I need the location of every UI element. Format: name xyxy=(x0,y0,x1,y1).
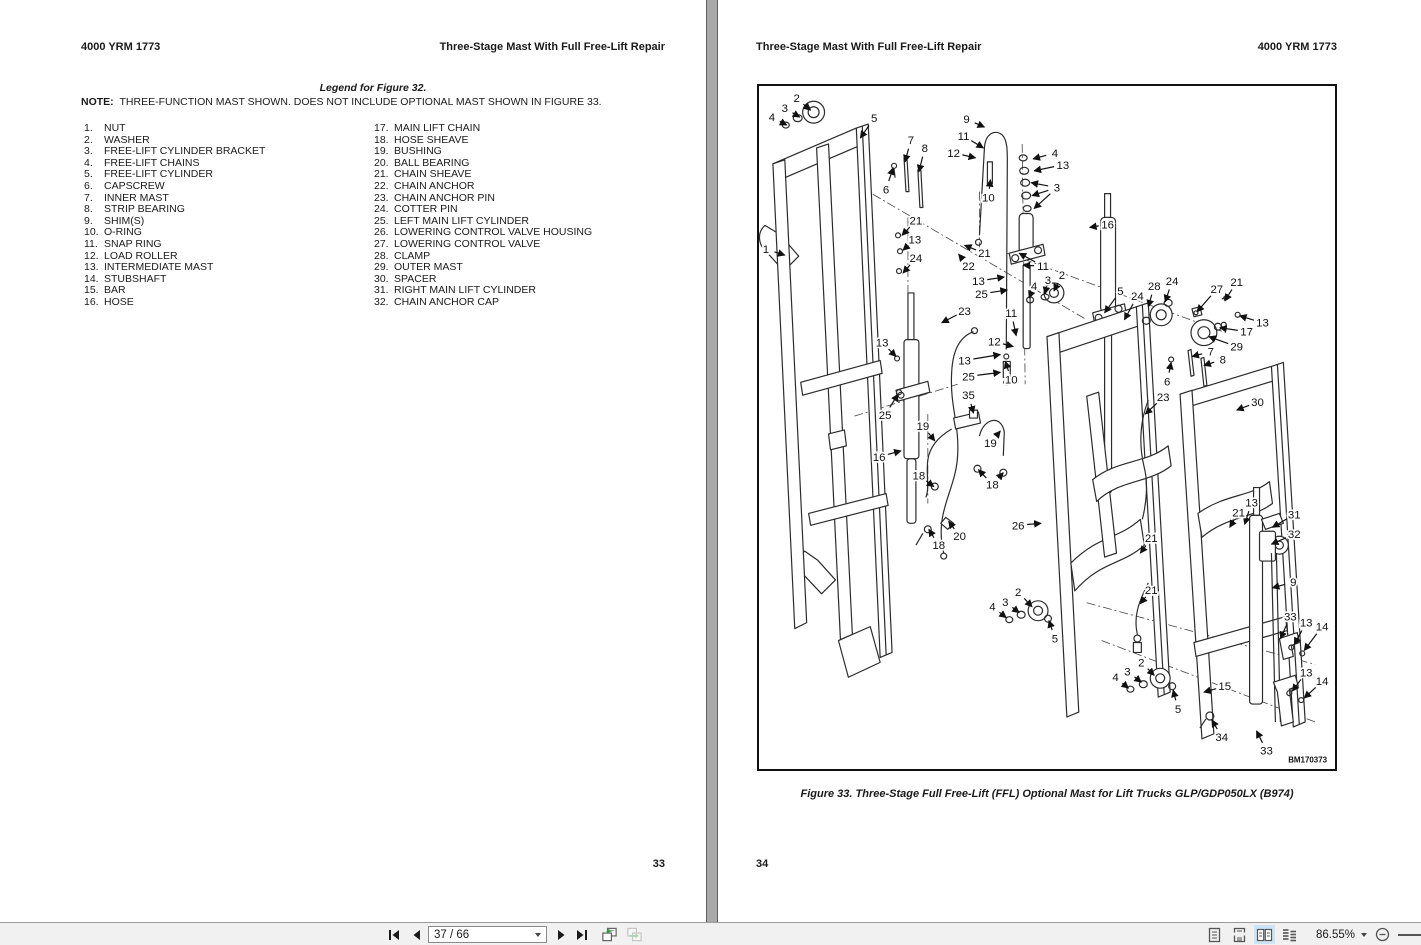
figure-callout: 5 xyxy=(871,113,877,125)
legend-item: 8.STRIP BEARING xyxy=(84,204,374,216)
figure-callout: 13 xyxy=(876,338,889,350)
page-divider xyxy=(706,0,718,922)
legend-item: 27.LOWERING CONTROL VALVE xyxy=(374,239,664,251)
pdf-toolbar: 37 / 66 xyxy=(0,922,1421,945)
figure-callout: 5 xyxy=(1117,286,1123,298)
legend-column-1: 1.NUT2.WASHER3.FREE-LIFT CYLINDER BRACKE… xyxy=(84,123,374,309)
legend-item: 16.HOSE xyxy=(84,297,374,309)
figure-callout: 13 xyxy=(1245,497,1258,509)
figure-callout: 25 xyxy=(975,289,988,301)
figure-callout: 13 xyxy=(1300,618,1313,630)
figure-callout: 12 xyxy=(947,148,960,160)
legend-item: 6.CAPSCREW xyxy=(84,181,374,193)
figure-callout: 17 xyxy=(1240,327,1253,339)
figure-callout: 9 xyxy=(963,114,969,126)
figure-callout: 8 xyxy=(1220,354,1226,366)
figure-callout: 7 xyxy=(908,135,914,147)
figure-callout: 28 xyxy=(1148,281,1161,293)
figure-callout: 3 xyxy=(1124,666,1130,678)
figure-callout: 12 xyxy=(988,337,1001,349)
figure-callout: 11 xyxy=(958,131,970,143)
figure-callout: 3 xyxy=(1054,183,1060,195)
legend-column-2: 17.MAIN LIFT CHAIN18.HOSE SHEAVE19.BUSHI… xyxy=(374,123,664,309)
figure-callout: 25 xyxy=(879,410,892,422)
figure-callout: 13 xyxy=(1256,318,1269,330)
figure-callout: 18 xyxy=(913,471,926,483)
figure-callout: 13 xyxy=(909,234,922,246)
figure-callout: 6 xyxy=(1164,376,1170,388)
page-number-value: 37 / 66 xyxy=(434,929,535,941)
figure-callout: 4 xyxy=(769,112,776,124)
figure-callout: 33 xyxy=(1260,746,1273,758)
zoom-dropdown-caret-icon[interactable] xyxy=(1361,933,1367,937)
figure-callout: 16 xyxy=(1101,219,1114,231)
figure-callout: 16 xyxy=(873,452,886,464)
document-page-34: Three-Stage Mast With Full Free-Lift Rep… xyxy=(718,0,1421,922)
zoom-slider[interactable] xyxy=(1398,934,1421,936)
next-page-button[interactable] xyxy=(552,926,569,943)
previous-view-button[interactable] xyxy=(601,926,618,943)
figure-callout: 1 xyxy=(763,244,769,256)
figure-callout: 29 xyxy=(1230,342,1243,354)
figure-33-exploded-diagram: 2345786911121041331612113242122132523111… xyxy=(757,84,1337,771)
figure-callout: 34 xyxy=(1215,732,1228,744)
figure-callout: 5 xyxy=(1052,634,1058,646)
header-doc-code: 4000 YRM 1773 xyxy=(1258,41,1337,53)
figure-callout: 4 xyxy=(989,602,996,614)
figure-caption: Figure 33. Three-Stage Full Free-Lift (F… xyxy=(757,788,1337,800)
figure-callout: 21 xyxy=(1145,585,1158,597)
figure-callout: 18 xyxy=(932,540,945,552)
figure-callout: 13 xyxy=(972,276,985,288)
figure-callout: 20 xyxy=(953,531,966,543)
header-doc-code: 4000 YRM 1773 xyxy=(81,41,160,53)
figure-callout: 7 xyxy=(1208,347,1214,359)
figure-callout: 15 xyxy=(1218,681,1231,693)
figure-callout: 3 xyxy=(1002,597,1008,609)
last-page-button[interactable] xyxy=(573,926,590,943)
figure-callout: 13 xyxy=(1300,667,1313,679)
figure-callout: 9 xyxy=(1290,577,1296,589)
page-number: 34 xyxy=(756,858,768,870)
figure-callout: 13 xyxy=(1057,160,1070,172)
mast-exploded-view-drawing: 2345786911121041331612113242122132523111… xyxy=(759,86,1335,769)
continuous-view-button[interactable] xyxy=(1229,925,1250,944)
two-page-view-button[interactable] xyxy=(1254,925,1275,944)
page-number: 33 xyxy=(653,858,665,870)
figure-callout: 21 xyxy=(910,215,923,227)
legend-item: 29.OUTER MAST xyxy=(374,262,664,274)
page-dropdown-caret-icon[interactable] xyxy=(535,933,541,937)
document-page-33: 4000 YRM 1773 Three-Stage Mast With Full… xyxy=(0,0,706,922)
page-header: 4000 YRM 1773 Three-Stage Mast With Full… xyxy=(81,41,665,53)
zoom-level-value[interactable]: 86.55% xyxy=(1316,929,1355,941)
note-label: NOTE: xyxy=(81,96,114,108)
legend-item: 11.SNAP RING xyxy=(84,239,374,251)
figure-callout: 24 xyxy=(1131,291,1144,303)
figure-callout: 8 xyxy=(922,143,928,155)
note-text: THREE-FUNCTION MAST SHOWN. DOES NOT INCL… xyxy=(120,96,602,108)
page-header: Three-Stage Mast With Full Free-Lift Rep… xyxy=(756,41,1337,53)
figure-callout: 4 xyxy=(1052,148,1059,160)
page-number-input[interactable]: 37 / 66 xyxy=(428,926,547,943)
figure-callout: 21 xyxy=(1230,277,1243,289)
figure-callout: 11 xyxy=(1037,261,1049,273)
figure-callout: 26 xyxy=(1012,520,1025,532)
zoom-out-button[interactable] xyxy=(1375,927,1390,942)
legend-item: 1.NUT xyxy=(84,123,374,135)
figure-callout: 11 xyxy=(1005,308,1017,320)
figure-callout: 25 xyxy=(962,371,975,383)
figure-callout: 3 xyxy=(782,103,788,115)
figure-callout: 30 xyxy=(1251,397,1264,409)
figure-callout: 4 xyxy=(1031,281,1038,293)
figure-callout: 2 xyxy=(794,93,800,105)
figure-callout: 24 xyxy=(1166,276,1179,288)
figure-callout: 21 xyxy=(1232,507,1245,519)
figure-callout: 4 xyxy=(1112,672,1119,684)
header-chapter-title: Three-Stage Mast With Full Free-Lift Rep… xyxy=(440,41,665,53)
figure-callout: 2 xyxy=(1138,657,1144,669)
legend-item: 32.CHAIN ANCHOR CAP xyxy=(374,297,664,309)
figure-callout: 23 xyxy=(1157,392,1170,404)
figure-callout: 21 xyxy=(978,248,991,260)
figure-callout: 32 xyxy=(1288,529,1301,541)
header-chapter-title: Three-Stage Mast With Full Free-Lift Rep… xyxy=(756,41,981,53)
figure-callout: 23 xyxy=(958,306,971,318)
figure-callout: 35 xyxy=(962,390,975,402)
legend-item: 22.CHAIN ANCHOR xyxy=(374,181,664,193)
previous-page-button[interactable] xyxy=(408,926,425,943)
legend-item: 13.INTERMEDIATE MAST xyxy=(84,262,374,274)
figure-callout: 21 xyxy=(1145,533,1158,545)
figure-callout: 24 xyxy=(910,253,923,265)
figure-callout: 27 xyxy=(1210,284,1223,296)
figure-callout: 33 xyxy=(1284,612,1297,624)
pdf-reader-window: 4000 YRM 1773 Three-Stage Mast With Full… xyxy=(0,0,1421,945)
figure-callout: 14 xyxy=(1316,622,1329,634)
figure-callout: 5 xyxy=(1175,704,1181,716)
next-view-button[interactable] xyxy=(626,926,643,943)
note-line: NOTE: THREE-FUNCTION MAST SHOWN. DOES NO… xyxy=(81,96,665,108)
document-view[interactable]: 4000 YRM 1773 Three-Stage Mast With Full… xyxy=(0,0,1421,922)
legend-list: 1.NUT2.WASHER3.FREE-LIFT CYLINDER BRACKE… xyxy=(84,123,686,309)
figure-callout: 13 xyxy=(958,355,971,367)
toolbar-right-group: 86.55% xyxy=(1202,923,1421,945)
figure-callout: 2 xyxy=(1059,270,1065,282)
legend-item: 24.COTTER PIN xyxy=(374,204,664,216)
figure-watermark: BM170373 xyxy=(1288,756,1327,765)
figure-callout: 10 xyxy=(1005,374,1018,386)
first-page-button[interactable] xyxy=(385,926,402,943)
figure-callout: 10 xyxy=(982,193,995,205)
figure-callout: 3 xyxy=(1045,275,1051,287)
figure-callout: 6 xyxy=(883,185,889,197)
two-page-continuous-view-button[interactable] xyxy=(1279,925,1300,944)
figure-callout: 18 xyxy=(986,480,999,492)
figure-callout: 14 xyxy=(1316,676,1329,688)
figure-callout: 19 xyxy=(917,421,930,433)
legend-title: Legend for Figure 32. xyxy=(81,82,665,94)
figure-callout: 22 xyxy=(962,261,975,273)
mast-line-art xyxy=(759,101,1305,739)
legend-item: 14.STUBSHAFT xyxy=(84,274,374,286)
single-page-view-button[interactable] xyxy=(1204,925,1225,944)
legend-item: 17.MAIN LIFT CHAIN xyxy=(374,123,664,135)
figure-callout: 2 xyxy=(1015,587,1021,599)
figure-callout: 31 xyxy=(1288,509,1301,521)
figure-callout: 19 xyxy=(984,438,997,450)
